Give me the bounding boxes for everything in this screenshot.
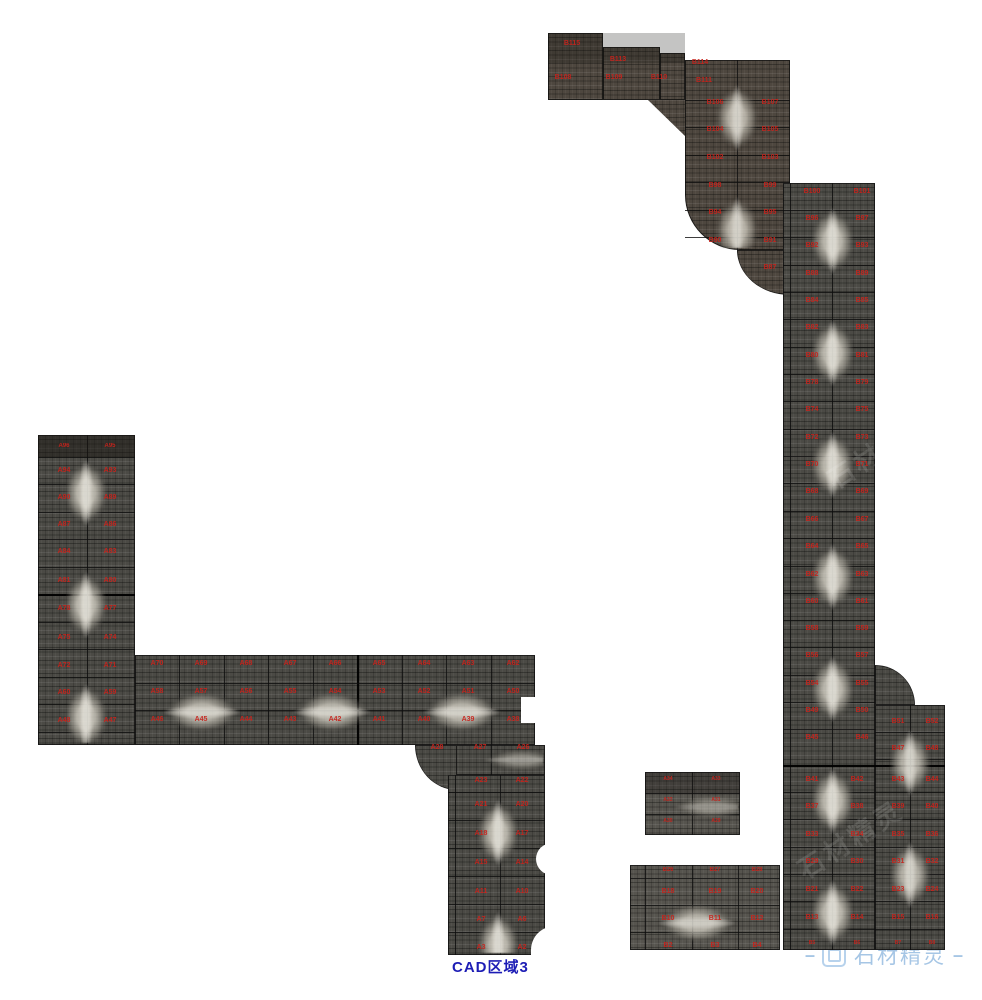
tile-label: B109 [606,74,623,81]
tile-label: B34 [851,831,864,838]
tile-gridline [135,710,535,711]
tile-label: A44 [240,716,253,723]
tile-label: B90 [709,237,722,244]
tile-label: A31 [711,798,720,803]
tile-label: B62 [806,571,819,578]
tile-gridline [875,929,945,930]
tile-label: A57 [195,688,208,695]
tile-label: A77 [104,605,117,612]
tile-label: B80 [806,352,819,359]
tile-label: B19 [709,888,722,895]
tile-label: A7 [477,916,486,923]
tile-label: A83 [104,548,117,555]
tile-label: B43 [892,776,905,783]
tile-label: A3 [477,944,486,951]
tile-label: B101 [854,188,871,195]
tile-label: A52 [418,688,431,695]
tile-label: B26 [662,867,673,873]
tile-label: A45 [195,716,208,723]
slab-gridline [783,765,875,767]
tile-label: B4 [753,942,762,949]
tile-label: B12 [751,915,764,922]
tile-label: B63 [856,571,869,578]
tile-label: A42 [329,716,342,723]
tile-gridline [875,759,945,760]
tile-label: A50 [507,688,520,695]
tile-label: B6 [854,941,860,946]
tile-label: B82 [806,324,819,331]
tile-label: A63 [462,660,475,667]
tile-label: A69 [195,660,208,667]
tile-label: B83 [856,324,869,331]
tile-gridline [645,793,740,794]
tile-gridline [313,655,314,745]
tile-label: B97 [856,215,869,222]
tile-label: A56 [240,688,253,695]
tile-gridline [448,848,545,849]
tile-label: A51 [462,688,475,695]
tile-gridline [783,792,875,793]
slab-gridline [875,765,945,767]
tile-label: A95 [104,443,115,449]
watermark-dash-right: – [953,945,963,966]
stone-piece-right-extension-fillet[interactable] [875,665,915,705]
tile-label: A81 [58,577,71,584]
tile-label: B22 [851,886,864,893]
tile-label: B85 [856,297,869,304]
tile-label: A46 [151,716,164,723]
tile-gridline [448,932,545,933]
tile-label: B20 [751,888,764,895]
tile-label: A32 [663,798,672,803]
tile-gridline [38,732,135,733]
tile-gridline [783,265,875,266]
tile-label: B96 [806,215,819,222]
tile-label: B5 [809,941,815,946]
tile-label: B88 [806,270,819,277]
tile-label: B105 [762,126,779,133]
tile-label: A75 [58,634,71,641]
tile-gridline [630,905,780,906]
tile-label: B114 [692,59,708,66]
tile-gridline [875,732,945,733]
tile-label: B94 [709,209,722,216]
tile-label: A59 [104,689,117,696]
tile-gridline [630,932,780,933]
tile-label: A43 [284,716,297,723]
tile-label: B37 [806,803,819,810]
tile-label: B32 [926,858,939,865]
tile-gridline [783,675,875,676]
tile-label: B36 [926,831,939,838]
tile-label: A71 [104,662,117,669]
tile-gridline [491,655,492,745]
tile-label: B78 [806,379,819,386]
tile-gridline [783,538,875,539]
tile-gridline [783,456,875,457]
tile-gridline [179,655,180,745]
tile-label: B73 [856,434,869,441]
tile-label: B70 [806,461,819,468]
tile-gridline [783,292,875,293]
tile-label: B13 [806,914,819,921]
tile-label: A70 [151,660,164,667]
tile-label: A23 [475,777,488,784]
tile-gridline [875,819,945,820]
tile-label: B48 [926,745,939,752]
tile-gridline [783,566,875,567]
tile-label: B92 [806,242,819,249]
tile-label: A33 [711,777,720,782]
tile-label: B56 [806,652,819,659]
tile-gridline [38,622,135,623]
tile-gridline [783,647,875,648]
tile-label: B87 [764,264,777,271]
tile-label: B64 [806,543,819,550]
tile-gridline [630,878,780,879]
tile-label: A58 [151,688,164,695]
cutout-notch [521,697,537,723]
tile-label: A74 [104,634,117,641]
tile-label: A28 [431,744,444,751]
tile-label: A67 [284,660,297,667]
tile-label: B104 [707,126,724,133]
tile-label: A60 [58,689,71,696]
tile-label: B74 [806,406,819,413]
tile-gridline [783,620,875,621]
tile-label: B69 [856,488,869,495]
tile-gridline [875,901,945,902]
tile-label: B35 [892,831,905,838]
tile-label: B59 [856,625,869,632]
tile-label: A39 [462,716,475,723]
tile-label: A27 [474,744,487,751]
tile-label: B115 [564,40,580,47]
tile-label: A15 [475,859,488,866]
tile-gridline [224,655,225,745]
stone-piece-left-column[interactable] [38,435,135,745]
tile-label: B33 [806,831,819,838]
tile-label: A14 [516,859,529,866]
tile-label: B14 [851,914,864,921]
tile-gridline [910,705,911,950]
tile-gridline [875,792,945,793]
tile-label: B46 [856,734,869,741]
tile-label: B95 [764,209,777,216]
tile-label: B10 [662,915,675,922]
tile-label: B61 [856,598,869,605]
tile-gridline [38,677,135,678]
tile-gridline [402,655,403,745]
tile-label: A96 [58,443,69,449]
tile-label: B50 [856,707,869,714]
tile-label: A90 [58,494,71,501]
tile-label: B29 [806,858,819,865]
tile-label: B24 [926,886,939,893]
tile-label: B16 [926,914,939,921]
tile-label: B28 [751,867,762,873]
tile-label: A86 [104,521,117,528]
tile-gridline [500,775,501,955]
tile-label: B98 [709,182,722,189]
tile-label: A47 [104,717,117,724]
tile-label: B68 [806,488,819,495]
tile-gridline [875,874,945,875]
tile-label: B91 [764,237,777,244]
tile-gridline [783,210,875,211]
tile-label: B23 [892,886,905,893]
tile-gridline [783,819,875,820]
tile-label: B11 [709,915,721,922]
tile-gridline [783,319,875,320]
tile-gridline [38,484,135,485]
tile-label: A17 [516,830,529,837]
tile-label: A55 [284,688,297,695]
tile-label: B40 [926,803,939,810]
tile-label: B106 [707,99,724,106]
tile-label: B89 [856,270,869,277]
tile-label: A40 [418,716,431,723]
tile-gridline [783,429,875,430]
tile-label: A87 [58,521,71,528]
tile-label: A11 [475,888,487,895]
stone-piece-top-strip-diagonal[interactable] [648,100,685,136]
tile-label: A10 [516,888,529,895]
tile-label: A89 [104,494,117,501]
stone-piece-strip-extension[interactable] [455,745,545,775]
tile-label: A6 [518,916,527,923]
tile-label: B65 [856,543,869,550]
tile-label: A41 [373,716,386,723]
tile-label: B102 [707,154,724,161]
tile-label: A26 [517,744,530,751]
tile-gridline [645,814,740,815]
tile-gridline [875,847,945,848]
tile-gridline [783,847,875,848]
tile-label: B72 [806,434,819,441]
tile-gridline [783,874,875,875]
tile-label: A94 [58,467,71,474]
tile-label: B15 [892,914,905,921]
tile-label: B42 [851,776,864,783]
tile-label: A34 [663,777,672,782]
tile-gridline [87,435,88,745]
tile-label: B8 [929,941,935,946]
tile-label: A68 [240,660,253,667]
tile-label: B54 [806,680,819,687]
tile-label: B103 [762,154,779,161]
tile-label: B38 [851,803,864,810]
tile-label: B58 [806,625,819,632]
tile-label: A22 [516,777,529,784]
tile-label: A65 [373,660,386,667]
tile-gridline [783,702,875,703]
tile-label: B44 [926,776,939,783]
tile-gridline [783,511,875,512]
tile-gridline [783,729,875,730]
tile-label: B100 [804,188,821,195]
tile-gridline [135,683,535,684]
tile-label: B99 [764,182,777,189]
tile-label: B55 [856,680,869,687]
tile-gridline [38,457,135,458]
tile-label: B75 [856,406,869,413]
tile-label: B110 [651,74,667,81]
tile-label: A2 [518,944,527,951]
tile-label: A93 [104,467,117,474]
slab-gridline [38,594,135,596]
tile-label: A29 [711,819,720,824]
tile-label: A64 [418,660,431,667]
tile-gridline [448,792,545,793]
tile-label: B52 [926,718,939,725]
tile-label: B51 [892,718,905,725]
tile-label: A18 [475,830,488,837]
tile-gridline [38,649,135,650]
tile-gridline [268,655,269,745]
tile-gridline [38,539,135,540]
tile-label: B60 [806,598,819,605]
tile-label: A30 [663,819,672,824]
tile-label: A78 [58,605,71,612]
stone-piece-small-block[interactable] [645,772,740,835]
tile-label: B57 [856,652,869,659]
tile-label: B18 [662,888,675,895]
tile-gridline [783,401,875,402]
tile-gridline [692,772,693,835]
tile-gridline [783,483,875,484]
tile-label: B93 [856,242,869,249]
tile-label: B31 [892,858,905,865]
tile-gridline [455,775,456,955]
tile-gridline [783,593,875,594]
tile-gridline [491,745,492,775]
tile-label: B66 [806,516,819,523]
tile-label: A84 [58,548,71,555]
tile-gridline [783,237,875,238]
tile-label: B41 [806,776,819,783]
cad-layout-canvas: CAD区域3 – 石材精灵 – 石材精灵石材精灵B115B113B114B108… [0,0,982,1000]
tile-label: B71 [856,461,869,468]
tile-label: B47 [892,745,905,752]
tile-label: A80 [104,577,117,584]
tile-label: B81 [856,352,869,359]
tile-label: B84 [806,297,819,304]
tile-label: B113 [610,56,626,63]
tile-label: A38 [507,716,520,723]
tile-gridline [38,704,135,705]
tile-gridline [38,512,135,513]
tile-label: B49 [806,707,819,714]
tile-label: B67 [856,516,869,523]
stone-piece-bottom-left-block[interactable] [630,865,780,950]
tile-label: B39 [892,803,905,810]
tile-label: B27 [709,867,720,873]
tile-gridline [783,347,875,348]
tile-label: B79 [856,379,869,386]
tile-label: B21 [806,886,819,893]
tile-label: A72 [58,662,71,669]
tile-gridline [783,374,875,375]
tile-label: A54 [329,688,342,695]
tile-label: A21 [475,801,488,808]
tile-label: B30 [851,858,864,865]
tile-label: B3 [711,942,720,949]
slab-gridline [357,655,359,745]
tile-gridline [783,901,875,902]
tile-label: B108 [555,74,572,81]
tile-label: B7 [895,941,901,946]
tile-label: B2 [664,942,673,949]
stone-piece-horizontal-strip[interactable] [135,655,535,745]
tile-gridline [448,904,545,905]
stone-piece-bottom-strip[interactable] [448,775,545,955]
tile-label: A48 [58,717,71,724]
tile-label: B107 [762,99,779,106]
tile-label: B45 [806,734,819,741]
tile-label: A62 [507,660,520,667]
tile-gridline [446,655,447,745]
tile-gridline [448,820,545,821]
tile-gridline [38,567,135,568]
tile-gridline [448,876,545,877]
tile-label: A53 [373,688,386,695]
area-title: CAD区域3 [452,956,529,977]
tile-gridline [783,929,875,930]
tile-label: A66 [329,660,342,667]
tile-label: B111 [696,77,712,84]
tile-label: A20 [516,801,529,808]
